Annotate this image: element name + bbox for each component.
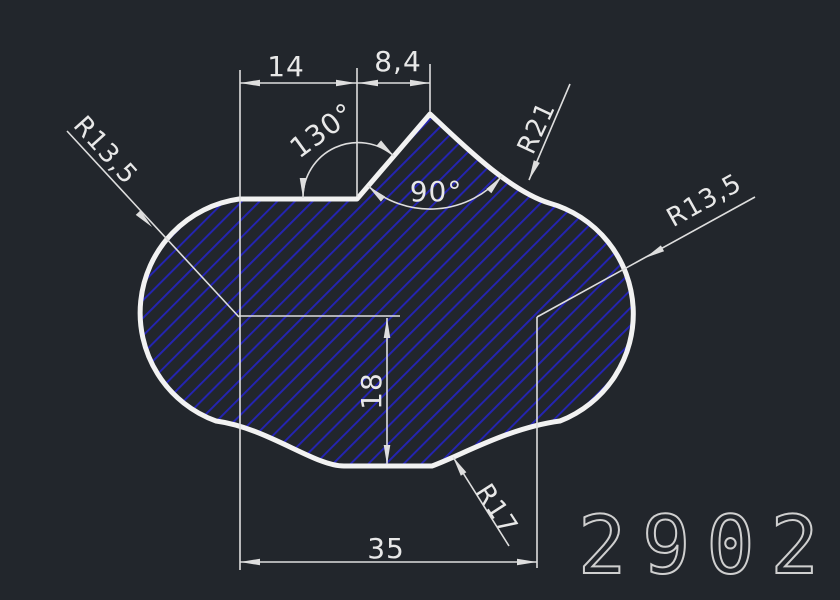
- dim-label-18: 18: [355, 372, 388, 410]
- dim-label-8-4: 8,4: [374, 45, 422, 78]
- drawing-canvas[interactable]: 14 8,4 130° 90° R21 R13,5 R13,5 18 R17 3…: [0, 0, 840, 600]
- dim-label-14: 14: [267, 50, 305, 83]
- cad-viewport[interactable]: 14 8,4 130° 90° R21 R13,5 R13,5 18 R17 3…: [0, 0, 840, 600]
- part-number: 2902: [578, 499, 835, 592]
- angle-label-90: 90°: [410, 175, 463, 208]
- dim-label-35: 35: [367, 532, 405, 565]
